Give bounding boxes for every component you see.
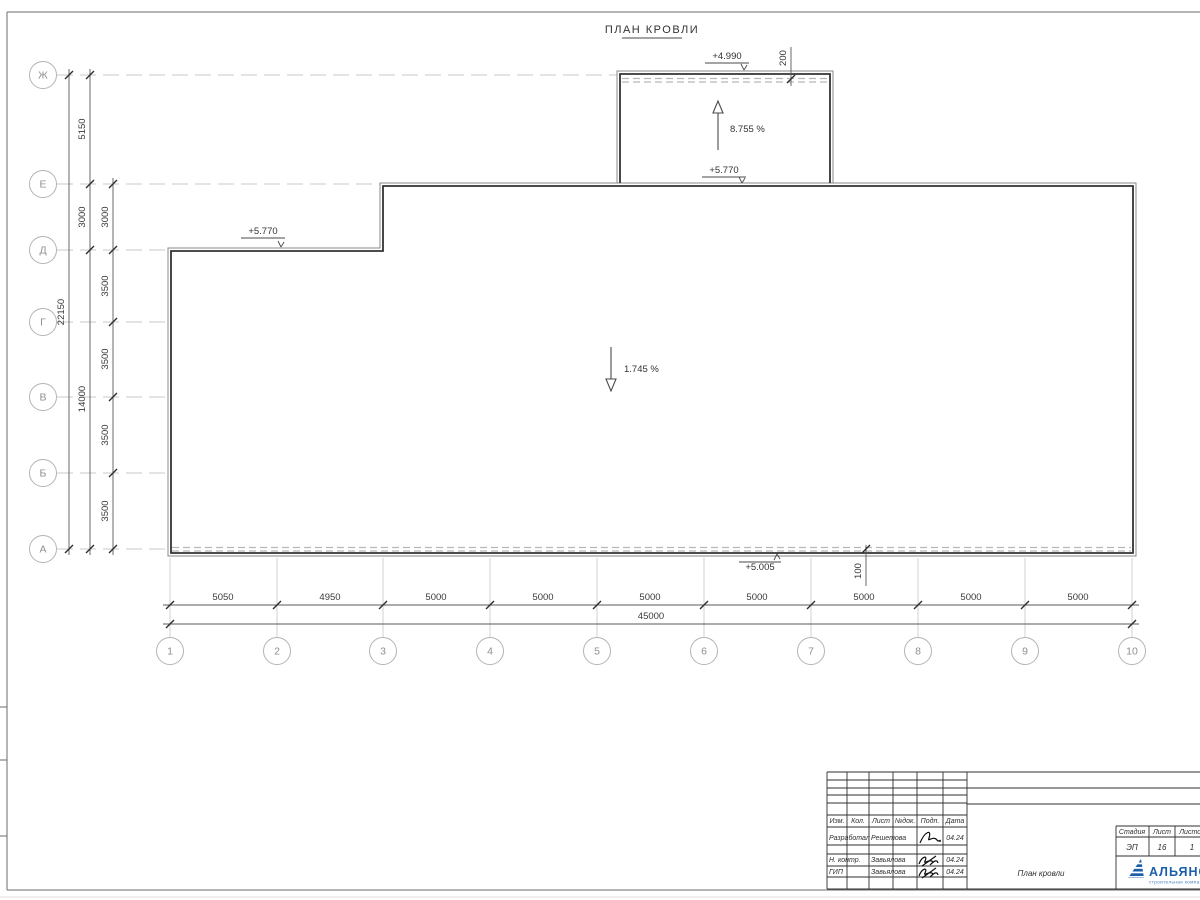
tb-col-data: Дата [945,818,965,825]
tb-col-izm: Изм. [830,818,845,825]
dimension-chain-bottom: 5050 4950 5000 5000 5000 5000 5000 5000 … [163,592,1139,609]
dim-text: 100 [853,563,864,579]
tb-col-kol: Кол. [851,818,865,825]
elevation-mark-upper-roof-base: +5.770 [702,165,746,183]
dim-text: 3000 [77,206,88,227]
dimension-chain-left-middle: 5150 3000 14000 [77,69,94,555]
roof-plan-sheet: ПЛАН КРОВЛИ Ж [0,0,1200,900]
axis-label: 5 [594,646,600,658]
tb-col-podp: Подп. [921,817,940,825]
dim-text: 5000 [639,592,660,603]
axis-label: 3 [380,646,386,658]
signature [919,868,938,878]
dimension-chain-left-outer: 22150 [56,69,73,555]
title-block: Изм. Кол. Лист №док. Подп. Дата Разработ… [827,772,1200,889]
slope-arrow-main: 1.745 % [606,347,659,391]
elevation-mark-left-roof: +5.770 [241,226,285,247]
svg-text:+5.770: +5.770 [709,165,738,176]
tb-name: Завьялова [871,857,906,864]
axis-label: 4 [487,646,493,658]
axis-label: 9 [1022,646,1028,658]
dim-text: 22150 [56,299,67,325]
dim-text: 200 [778,50,789,66]
axis-label: 6 [701,646,707,658]
dim-text: 45000 [638,611,664,622]
gutter-line-projection [622,79,828,83]
tb-col-ndok: №док. [895,817,916,825]
tb-sheets-value: 1 [1190,843,1194,852]
svg-text:8.755 %: 8.755 % [730,124,765,135]
dim-text: 5050 [212,592,233,603]
elevation-mark-upper-roof: +4.990 [705,51,749,70]
axis-label: Ж [38,70,48,82]
dimension-chain-left-inner: 3000 3500 3500 3500 3500 [100,178,117,555]
elevation-mark-gutter: +5.005 [736,554,786,573]
axis-label: 8 [915,646,921,658]
tb-date: 04.24 [946,835,964,842]
dim-text: 5000 [746,592,767,603]
svg-text:+5.770: +5.770 [248,226,277,237]
svg-text:1.745 %: 1.745 % [624,364,659,375]
tb-stage-label: Стадия [1119,828,1145,836]
tb-name: Завьялова [871,869,906,876]
axis-label: В [39,392,46,404]
tb-col-list: Лист [871,818,890,825]
dim-text: 5000 [960,592,981,603]
svg-text:+5.005: +5.005 [745,562,774,573]
dim-text: 5000 [853,592,874,603]
gutter-line-main [172,548,1131,552]
tb-sheet-label: Лист [1152,829,1171,836]
dimension-parapet-offset-top: 200 [778,47,795,86]
axis-label: 10 [1126,646,1138,658]
tb-stage-value: ЭП [1126,843,1138,852]
signature [920,832,940,843]
logo-text: АЛЬЯНС [1149,865,1200,879]
axis-label: Б [40,468,47,480]
axis-label: Г [40,317,46,329]
tb-sheets-label: Листов [1178,829,1200,836]
dim-text: 3500 [100,500,111,521]
company-logo: АЛЬЯНС строительная компания [1126,859,1200,886]
tb-role: Н. контр. [829,857,861,864]
tb-date: 04.24 [946,857,964,864]
drawing-title: ПЛАН КРОВЛИ [605,24,699,36]
axis-bubbles-left: Ж Е Д Г В Б А [30,62,57,563]
tb-date: 04.24 [946,869,964,876]
tb-role: ГИП [829,869,844,876]
dim-text: 14000 [77,386,88,412]
axis-label: Д [39,245,46,257]
slope-arrow-upper: 8.755 % [713,101,765,150]
tb-doc-title: План кровли [1018,869,1065,878]
tb-name: Решетова [871,835,906,842]
dim-text: 5000 [425,592,446,603]
dim-text: 3500 [100,275,111,296]
grid-axis-lines-horizontal [57,75,617,549]
axis-label: 2 [274,646,280,658]
tb-sheet-value: 16 [1158,843,1167,852]
axis-label: Е [39,179,46,191]
signature [919,856,938,866]
sheet-frame [0,12,1200,897]
dim-text: 5000 [532,592,553,603]
axis-label: А [39,544,46,556]
logo-subtext: строительная компания [1149,881,1200,886]
dim-text: 5000 [1067,592,1088,603]
tb-role: Разработал [829,834,870,842]
dim-text: 5150 [77,118,88,139]
axis-bubbles-bottom: 1 2 3 4 5 6 7 8 9 10 [157,638,1146,665]
svg-text:+4.990: +4.990 [712,51,741,62]
axis-label: 1 [167,646,173,658]
dim-text: 3000 [100,206,111,227]
dim-text: 4950 [319,592,340,603]
dim-text: 3500 [100,348,111,369]
axis-label: 7 [808,646,814,658]
dim-text: 3500 [100,424,111,445]
dimension-bottom-total: 45000 [163,611,1139,628]
